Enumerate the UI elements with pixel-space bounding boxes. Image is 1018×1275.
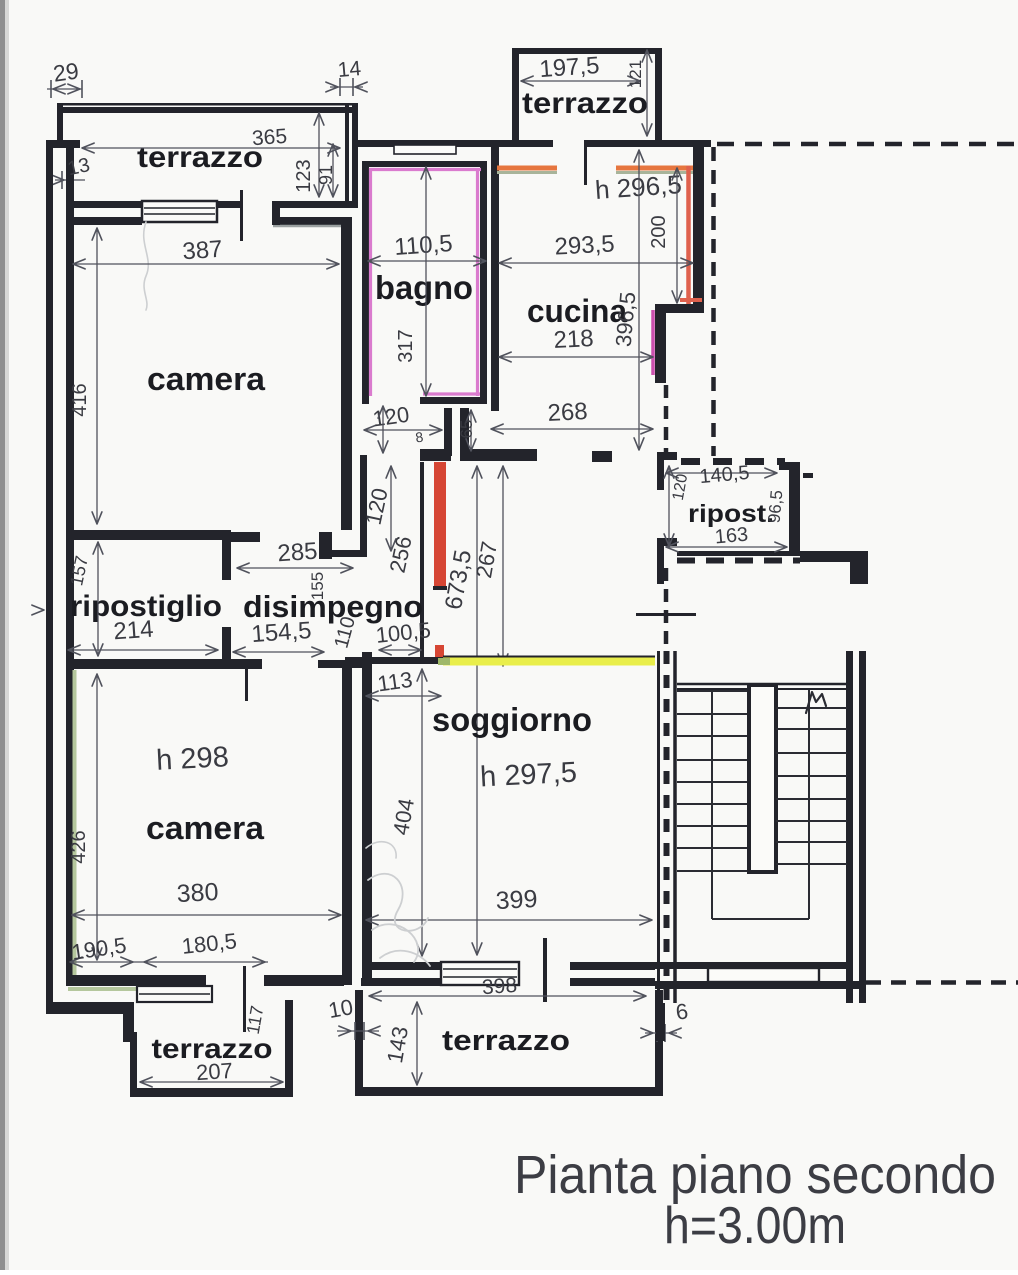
svg-text:terrazzo: terrazzo: [522, 87, 648, 120]
svg-text:91: 91: [316, 165, 336, 185]
svg-text:65: 65: [457, 420, 476, 439]
svg-text:426: 426: [68, 830, 90, 863]
svg-text:ripost.: ripost.: [688, 500, 774, 528]
svg-text:camera: camera: [147, 361, 265, 397]
svg-text:197,5: 197,5: [539, 52, 601, 83]
svg-text:200: 200: [648, 215, 670, 248]
svg-text:268: 268: [547, 398, 588, 427]
svg-text:214: 214: [113, 616, 155, 646]
svg-text:154,5: 154,5: [251, 617, 313, 648]
svg-text:h 297,5: h 297,5: [479, 757, 577, 794]
svg-text:terrazzo: terrazzo: [137, 141, 263, 174]
svg-text:396,5: 396,5: [611, 291, 641, 348]
svg-text:317: 317: [395, 329, 417, 362]
svg-text:h 298: h 298: [155, 741, 229, 777]
svg-text:121: 121: [626, 60, 645, 88]
svg-text:416: 416: [69, 383, 91, 416]
svg-text:14: 14: [337, 57, 363, 82]
svg-text:110,5: 110,5: [393, 230, 453, 261]
svg-text:123: 123: [293, 159, 315, 192]
svg-text:soggiorno: soggiorno: [432, 701, 592, 738]
svg-text:120: 120: [371, 402, 411, 432]
svg-text:10: 10: [326, 994, 354, 1023]
svg-text:285: 285: [277, 538, 319, 568]
svg-text:207: 207: [195, 1058, 233, 1086]
svg-text:terrazzo: terrazzo: [442, 1025, 570, 1057]
svg-text:163: 163: [714, 524, 749, 549]
svg-text:398: 398: [481, 974, 518, 999]
svg-text:disimpegno: disimpegno: [243, 589, 423, 624]
svg-text:365: 365: [251, 125, 288, 150]
svg-text:380: 380: [176, 878, 219, 908]
svg-text:bagno: bagno: [375, 269, 473, 306]
svg-text:140,5: 140,5: [699, 462, 751, 488]
svg-text:155: 155: [308, 572, 327, 600]
svg-text:camera: camera: [146, 810, 264, 846]
svg-text:113: 113: [376, 667, 414, 697]
svg-text:218: 218: [553, 325, 594, 354]
svg-text:h=3.00m: h=3.00m: [664, 1197, 846, 1255]
svg-text:29: 29: [51, 57, 80, 86]
svg-text:387: 387: [182, 236, 224, 266]
svg-text:399: 399: [495, 885, 538, 915]
svg-text:293,5: 293,5: [554, 230, 615, 260]
svg-text:13: 13: [66, 154, 92, 180]
svg-text:Pianta piano secondo: Pianta piano secondo: [514, 1145, 996, 1205]
svg-text:96,5: 96,5: [765, 489, 787, 524]
